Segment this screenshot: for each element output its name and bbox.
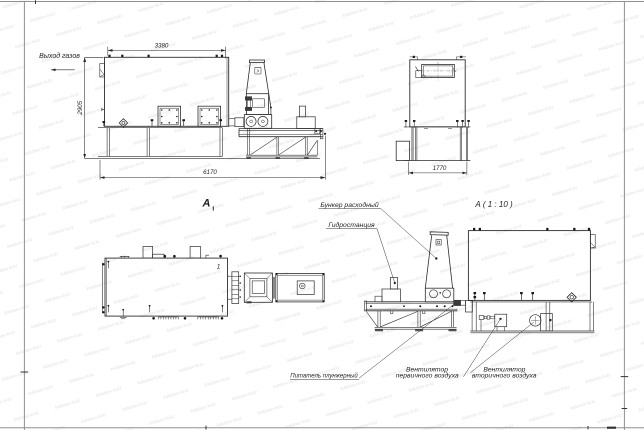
svg-text:1770: 1770 [433,165,447,172]
svg-text:2905: 2905 [77,100,84,115]
svg-text:Выход газов: Выход газов [39,52,80,60]
svg-text:Гидростанция: Гидростанция [328,221,375,229]
svg-text:Бункер расходный: Бункер расходный [320,201,378,209]
svg-text:Питатель плунжерный: Питатель плунжерный [290,372,358,380]
svg-text:А: А [202,197,211,209]
svg-text:1: 1 [217,264,221,271]
svg-text:первичного воздуха: первичного воздуха [396,372,459,380]
svg-text:6170: 6170 [203,169,217,176]
svg-text:вторичного воздуха: вторичного воздуха [472,372,537,380]
svg-text:А ( 1 : 10 ): А ( 1 : 10 ) [474,200,513,209]
svg-text:3380: 3380 [155,42,169,49]
